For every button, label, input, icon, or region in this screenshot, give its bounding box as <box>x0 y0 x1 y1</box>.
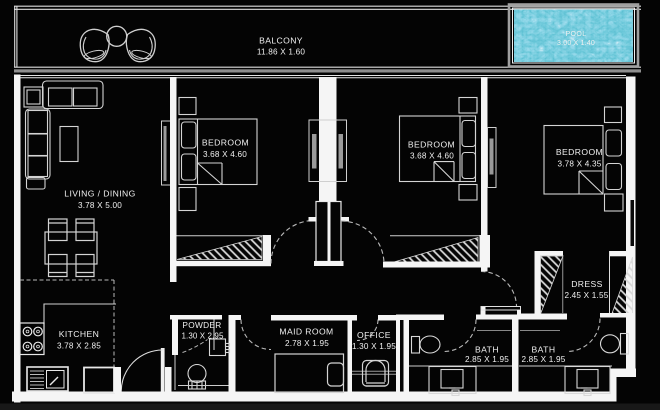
svg-text:BEDROOM: BEDROOM <box>556 147 603 157</box>
svg-text:DRESS: DRESS <box>571 279 603 289</box>
svg-text:BATH: BATH <box>475 345 499 355</box>
svg-text:POOL: POOL <box>565 31 586 38</box>
svg-text:3.78 X 2.85: 3.78 X 2.85 <box>57 342 101 351</box>
svg-text:BEDROOM: BEDROOM <box>408 140 455 150</box>
svg-text:BALCONY: BALCONY <box>259 36 303 46</box>
svg-text:MAID ROOM: MAID ROOM <box>279 327 333 337</box>
svg-text:POWDER: POWDER <box>182 320 221 330</box>
svg-text:BATH: BATH <box>532 345 556 355</box>
svg-text:2.78 X 1.95: 2.78 X 1.95 <box>285 339 329 348</box>
svg-text:11.86 X 1.60: 11.86 X 1.60 <box>257 48 305 57</box>
svg-text:BEDROOM: BEDROOM <box>202 138 249 148</box>
svg-text:OFFICE: OFFICE <box>357 330 391 340</box>
svg-text:2.85 X 1.95: 2.85 X 1.95 <box>465 355 509 364</box>
svg-text:LIVING / DINING: LIVING / DINING <box>64 189 135 199</box>
svg-text:3.00 X 1.40: 3.00 X 1.40 <box>557 40 595 47</box>
svg-text:2.85 X 1.95: 2.85 X 1.95 <box>521 355 565 364</box>
svg-text:3.68 X 4.60: 3.68 X 4.60 <box>203 150 247 159</box>
svg-text:KITCHEN: KITCHEN <box>59 329 100 339</box>
svg-text:2.45 X 1.55: 2.45 X 1.55 <box>564 291 608 300</box>
svg-text:1.30 X 1.95: 1.30 X 1.95 <box>352 342 396 351</box>
svg-text:3.78 X 5.00: 3.78 X 5.00 <box>78 201 122 210</box>
svg-text:3.78 X 4.35: 3.78 X 4.35 <box>557 160 601 169</box>
svg-text:3.68 X 4.60: 3.68 X 4.60 <box>410 152 454 161</box>
